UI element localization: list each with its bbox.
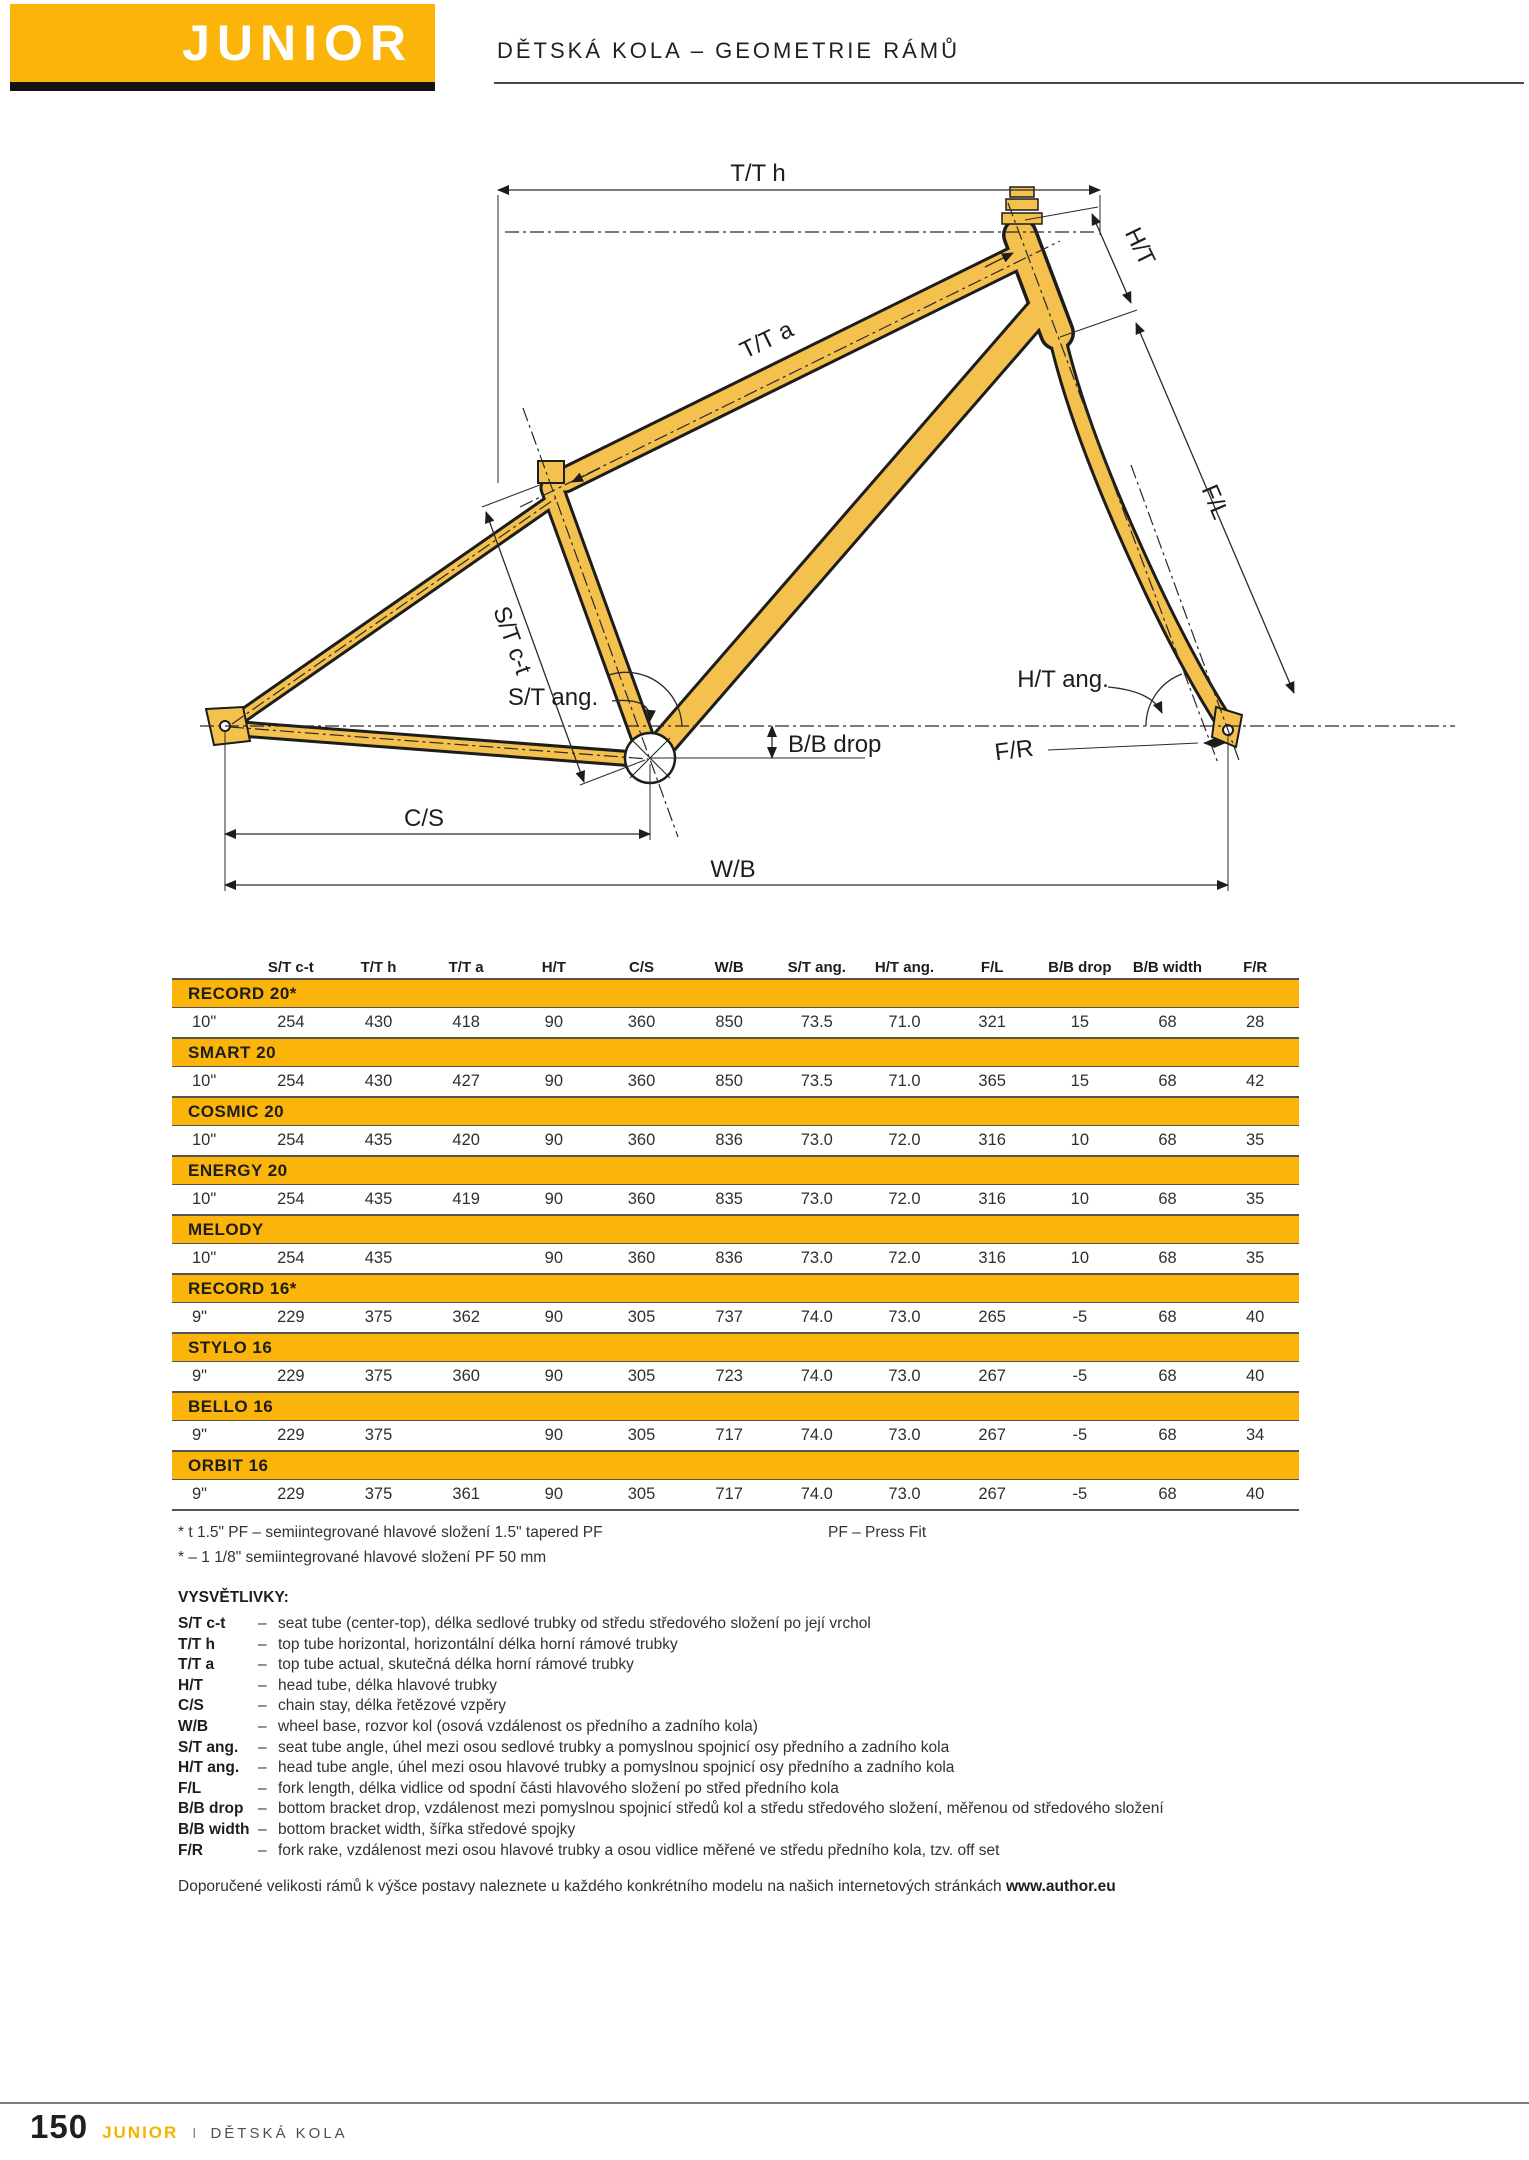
frame-size-cell: 10" xyxy=(172,1013,247,1032)
value-cell: 72.0 xyxy=(861,1131,949,1150)
value-cell: 71.0 xyxy=(861,1013,949,1032)
footnote-pressfit: PF – Press Fit xyxy=(828,1524,926,1542)
model-name: COSMIC 20 xyxy=(188,1102,284,1122)
value-cell: 305 xyxy=(598,1367,686,1386)
footer-brand: JUNIOR xyxy=(102,2123,178,2143)
value-cell: 68 xyxy=(1124,1190,1212,1209)
value-cell: 73.0 xyxy=(861,1308,949,1327)
value-cell: 229 xyxy=(247,1485,335,1504)
value-cell: 68 xyxy=(1124,1367,1212,1386)
column-header: S/T ang. xyxy=(773,959,861,976)
value-cell: 836 xyxy=(685,1249,773,1268)
legend-title: VYSVĚTLIVKY: xyxy=(178,1589,1418,1607)
value-cell: 68 xyxy=(1124,1426,1212,1445)
value-cell: 15 xyxy=(1036,1072,1124,1091)
legend-description: wheel base, rozvor kol (osová vzdálenost… xyxy=(278,1718,758,1736)
value-cell: -5 xyxy=(1036,1485,1124,1504)
table-row: 10" 254 435 419 90 360 835 73.0 72.0 316… xyxy=(172,1185,1299,1214)
value-cell: 850 xyxy=(685,1013,773,1032)
legend-term: S/T c-t xyxy=(178,1615,258,1633)
header-rule xyxy=(494,82,1524,84)
column-header: B/B width xyxy=(1124,959,1212,976)
legend-dash: – xyxy=(258,1739,278,1757)
value-cell: 360 xyxy=(422,1367,510,1386)
value-cell: 717 xyxy=(685,1485,773,1504)
legend-term: B/B drop xyxy=(178,1800,258,1818)
model-name-band: RECORD 16* xyxy=(172,1273,1299,1303)
value-cell: 254 xyxy=(247,1131,335,1150)
legend-dash: – xyxy=(258,1800,278,1818)
value-cell: 72.0 xyxy=(861,1190,949,1209)
value-cell: 74.0 xyxy=(773,1426,861,1445)
legend-description: bottom bracket width, šířka středové spo… xyxy=(278,1821,575,1839)
frame-size-cell: 10" xyxy=(172,1190,247,1209)
value-cell: 435 xyxy=(335,1249,423,1268)
value-cell: 316 xyxy=(948,1249,1036,1268)
value-cell: 10 xyxy=(1036,1249,1124,1268)
value-cell: 40 xyxy=(1211,1367,1299,1386)
label-ht-dimension: H/T xyxy=(1119,223,1160,270)
footer: 150 JUNIOR I DĚTSKÁ KOLA xyxy=(30,2108,348,2146)
model-name: STYLO 16 xyxy=(188,1338,272,1358)
value-cell: 10 xyxy=(1036,1190,1124,1209)
column-header: W/B xyxy=(685,959,773,976)
footer-rule xyxy=(0,2102,1529,2104)
column-header: B/B drop xyxy=(1036,959,1124,976)
value-cell: 28 xyxy=(1211,1013,1299,1032)
value-cell: 68 xyxy=(1124,1072,1212,1091)
value-cell: 850 xyxy=(685,1072,773,1091)
value-cell: 73.0 xyxy=(861,1367,949,1386)
value-cell: 74.0 xyxy=(773,1367,861,1386)
value-cell: 375 xyxy=(335,1367,423,1386)
column-header: T/T a xyxy=(422,959,510,976)
table-row: 10" 254 430 427 90 360 850 73.5 71.0 365… xyxy=(172,1067,1299,1096)
value-cell: 90 xyxy=(510,1367,598,1386)
value-cell: 34 xyxy=(1211,1426,1299,1445)
value-cell: 74.0 xyxy=(773,1485,861,1504)
page-title: DĚTSKÁ KOLA – GEOMETRIE RÁMŮ xyxy=(497,38,960,64)
label-cs-dimension: C/S xyxy=(404,805,444,832)
legend-term: B/B width xyxy=(178,1821,258,1839)
legend-dash: – xyxy=(258,1759,278,1777)
table-header-row: S/T c-t T/T h T/T a H/T C/S W/B S/T ang.… xyxy=(172,956,1299,978)
legend-item: T/T h – top tube horizontal, horizontáln… xyxy=(178,1636,1418,1657)
footnote-line1: * t 1.5" PF – semiintegrované hlavové sl… xyxy=(178,1524,603,1541)
legend-term: T/T a xyxy=(178,1656,258,1674)
value-cell: 316 xyxy=(948,1190,1036,1209)
value-cell: 35 xyxy=(1211,1190,1299,1209)
value-cell: 40 xyxy=(1211,1308,1299,1327)
legend-item: W/B – wheel base, rozvor kol (osová vzdá… xyxy=(178,1718,1418,1739)
legend-dash: – xyxy=(258,1718,278,1736)
table-row: 10" 254 430 418 90 360 850 73.5 71.0 321… xyxy=(172,1008,1299,1037)
value-cell: 90 xyxy=(510,1249,598,1268)
value-cell: 360 xyxy=(598,1072,686,1091)
frame-size-cell: 10" xyxy=(172,1249,247,1268)
seat-clamp xyxy=(538,461,564,483)
value-cell: 836 xyxy=(685,1131,773,1150)
value-cell: 430 xyxy=(335,1013,423,1032)
author-website-link[interactable]: www.author.eu xyxy=(1006,1878,1116,1895)
frame-geometry-diagram: T/T h T/T a H/T F/L S/T c-t S/T ang. H/T… xyxy=(0,95,1529,955)
model-name-band: SMART 20 xyxy=(172,1037,1299,1067)
value-cell: 419 xyxy=(422,1190,510,1209)
label-fl-dimension: F/L xyxy=(1196,481,1234,523)
value-cell: 73.0 xyxy=(773,1131,861,1150)
value-cell: 267 xyxy=(948,1367,1036,1386)
model-name: RECORD 16* xyxy=(188,1279,297,1299)
value-cell: 90 xyxy=(510,1190,598,1209)
value-cell: 420 xyxy=(422,1131,510,1150)
legend-item: S/T c-t – seat tube (center-top), délka … xyxy=(178,1615,1418,1636)
model-name-band: ORBIT 16 xyxy=(172,1450,1299,1480)
value-cell: 68 xyxy=(1124,1249,1212,1268)
model-name-band: BELLO 16 xyxy=(172,1391,1299,1421)
legend-term: F/L xyxy=(178,1780,258,1798)
value-cell: 90 xyxy=(510,1131,598,1150)
table-row: 9" 229 375 360 90 305 723 74.0 73.0 267 … xyxy=(172,1362,1299,1391)
value-cell: -5 xyxy=(1036,1308,1124,1327)
column-header: S/T c-t xyxy=(247,959,335,976)
value-cell: 723 xyxy=(685,1367,773,1386)
legend-term: T/T h xyxy=(178,1636,258,1654)
value-cell: 68 xyxy=(1124,1131,1212,1150)
column-header: F/L xyxy=(948,959,1036,976)
legend: VYSVĚTLIVKY: S/T c-t – seat tube (center… xyxy=(178,1589,1418,1862)
footer-section: DĚTSKÁ KOLA xyxy=(210,2125,347,2142)
value-cell: 68 xyxy=(1124,1308,1212,1327)
value-cell: 90 xyxy=(510,1072,598,1091)
legend-term: H/T ang. xyxy=(178,1759,258,1777)
value-cell: -5 xyxy=(1036,1367,1124,1386)
legend-item: B/B drop – bottom bracket drop, vzdáleno… xyxy=(178,1800,1418,1821)
legend-dash: – xyxy=(258,1697,278,1715)
value-cell: 71.0 xyxy=(861,1072,949,1091)
legend-item: H/T ang. – head tube angle, úhel mezi os… xyxy=(178,1759,1418,1780)
model-name-band: COSMIC 20 xyxy=(172,1096,1299,1126)
geometry-table: S/T c-t T/T h T/T a H/T C/S W/B S/T ang.… xyxy=(172,956,1299,1511)
legend-dash: – xyxy=(258,1677,278,1695)
value-cell: 73.0 xyxy=(773,1190,861,1209)
legend-description: top tube actual, skutečná délka horní rá… xyxy=(278,1656,634,1674)
legend-description: chain stay, délka řetězové vzpěry xyxy=(278,1697,506,1715)
legend-item: H/T – head tube, délka hlavové trubky xyxy=(178,1677,1418,1698)
value-cell: 375 xyxy=(335,1485,423,1504)
value-cell: 10 xyxy=(1036,1131,1124,1150)
recommendation-note: Doporučené velikosti rámů k výšce postav… xyxy=(178,1878,1116,1896)
value-cell: 254 xyxy=(247,1249,335,1268)
value-cell: 90 xyxy=(510,1308,598,1327)
value-cell: 360 xyxy=(598,1131,686,1150)
model-name-band: STYLO 16 xyxy=(172,1332,1299,1362)
table-row: 10" 254 435 420 90 360 836 73.0 72.0 316… xyxy=(172,1126,1299,1155)
legend-dash: – xyxy=(258,1615,278,1633)
value-cell: 72.0 xyxy=(861,1249,949,1268)
value-cell: 835 xyxy=(685,1190,773,1209)
legend-dash: – xyxy=(258,1656,278,1674)
value-cell: 360 xyxy=(598,1190,686,1209)
value-cell: 229 xyxy=(247,1426,335,1445)
page-number: 150 xyxy=(30,2108,88,2146)
legend-term: W/B xyxy=(178,1718,258,1736)
value-cell: 360 xyxy=(598,1249,686,1268)
bike-frame-drawing xyxy=(206,187,1242,783)
value-cell: 90 xyxy=(510,1013,598,1032)
value-cell: 73.0 xyxy=(861,1485,949,1504)
legend-item: B/B width – bottom bracket width, šířka … xyxy=(178,1821,1418,1842)
value-cell: 305 xyxy=(598,1426,686,1445)
value-cell: 435 xyxy=(335,1131,423,1150)
label-fr-dimension: F/R xyxy=(993,735,1035,767)
legend-term: F/R xyxy=(178,1842,258,1860)
footnotes: * t 1.5" PF – semiintegrované hlavové sl… xyxy=(178,1524,1338,1567)
legend-item: T/T a – top tube actual, skutečná délka … xyxy=(178,1656,1418,1677)
frame-size-cell: 9" xyxy=(172,1367,247,1386)
value-cell: 229 xyxy=(247,1308,335,1327)
model-name: ENERGY 20 xyxy=(188,1161,288,1181)
legend-item: S/T ang. – seat tube angle, úhel mezi os… xyxy=(178,1739,1418,1760)
label-tth-dimension: T/T h xyxy=(730,160,786,187)
value-cell: 35 xyxy=(1211,1249,1299,1268)
legend-description: top tube horizontal, horizontální délka … xyxy=(278,1636,678,1654)
footnote-line2: * – 1 1/8" semiintegrované hlavové slože… xyxy=(178,1549,1338,1567)
legend-description: seat tube angle, úhel mezi osou sedlové … xyxy=(278,1739,949,1757)
column-header: C/S xyxy=(598,959,686,976)
column-header: F/R xyxy=(1211,959,1299,976)
value-cell: 435 xyxy=(335,1190,423,1209)
value-cell: 267 xyxy=(948,1485,1036,1504)
value-cell: 35 xyxy=(1211,1131,1299,1150)
legend-description: seat tube (center-top), délka sedlové tr… xyxy=(278,1615,871,1633)
legend-dash: – xyxy=(258,1842,278,1860)
value-cell: 254 xyxy=(247,1190,335,1209)
value-cell: 254 xyxy=(247,1013,335,1032)
value-cell: 68 xyxy=(1124,1013,1212,1032)
value-cell: 74.0 xyxy=(773,1308,861,1327)
legend-dash: – xyxy=(258,1636,278,1654)
value-cell: 365 xyxy=(948,1072,1036,1091)
legend-item: F/R – fork rake, vzdálenost mezi osou hl… xyxy=(178,1842,1418,1863)
label-stct-dimension: S/T c-t xyxy=(487,603,537,679)
value-cell: 40 xyxy=(1211,1485,1299,1504)
legend-description: fork length, délka vidlice od spodní čás… xyxy=(278,1780,839,1798)
column-header: H/T ang. xyxy=(861,959,949,976)
column-header: T/T h xyxy=(335,959,423,976)
table-body: RECORD 20* 10" 254 430 418 90 360 850 73… xyxy=(172,978,1299,1511)
note-text: Doporučené velikosti rámů k výšce postav… xyxy=(178,1878,1002,1895)
value-cell: 427 xyxy=(422,1072,510,1091)
frame-size-cell: 10" xyxy=(172,1131,247,1150)
label-htang-dimension: H/T ang. xyxy=(1017,666,1109,693)
legend-item: C/S – chain stay, délka řetězové vzpěry xyxy=(178,1697,1418,1718)
table-row: 9" 229 375 362 90 305 737 74.0 73.0 265 … xyxy=(172,1303,1299,1332)
value-cell: 305 xyxy=(598,1308,686,1327)
value-cell: 73.5 xyxy=(773,1072,861,1091)
value-cell: 73.0 xyxy=(861,1426,949,1445)
table-row: 9" 229 375 361 90 305 717 74.0 73.0 267 … xyxy=(172,1480,1299,1509)
legend-description: head tube, délka hlavové trubky xyxy=(278,1677,497,1695)
legend-description: fork rake, vzdálenost mezi osou hlavové … xyxy=(278,1842,999,1860)
frame-size-cell: 9" xyxy=(172,1308,247,1327)
value-cell: 375 xyxy=(335,1426,423,1445)
column-header: H/T xyxy=(510,959,598,976)
label-stang-dimension: S/T ang. xyxy=(508,684,598,711)
value-cell: 737 xyxy=(685,1308,773,1327)
brand-underbar xyxy=(10,82,435,91)
value-cell: 90 xyxy=(510,1485,598,1504)
label-wb-dimension: W/B xyxy=(710,856,755,883)
value-cell: 90 xyxy=(510,1426,598,1445)
frame-size-cell: 10" xyxy=(172,1072,247,1091)
legend-term: H/T xyxy=(178,1677,258,1695)
legend-item: F/L – fork length, délka vidlice od spod… xyxy=(178,1780,1418,1801)
legend-items: S/T c-t – seat tube (center-top), délka … xyxy=(178,1615,1418,1862)
footer-separator: I xyxy=(192,2125,196,2142)
brand-box: JUNIOR xyxy=(10,4,435,82)
model-name: MELODY xyxy=(188,1220,264,1240)
legend-description: bottom bracket drop, vzdálenost mezi pom… xyxy=(278,1800,1164,1818)
legend-dash: – xyxy=(258,1780,278,1798)
legend-term: C/S xyxy=(178,1697,258,1715)
value-cell: 73.0 xyxy=(773,1249,861,1268)
model-name: SMART 20 xyxy=(188,1043,276,1063)
value-cell: 68 xyxy=(1124,1485,1212,1504)
value-cell: 305 xyxy=(598,1485,686,1504)
value-cell: 717 xyxy=(685,1426,773,1445)
label-bbdrop-dimension: B/B drop xyxy=(788,731,881,758)
value-cell: 430 xyxy=(335,1072,423,1091)
legend-term: S/T ang. xyxy=(178,1739,258,1757)
brand-title: JUNIOR xyxy=(182,14,413,72)
value-cell: 375 xyxy=(335,1308,423,1327)
model-name-band: ENERGY 20 xyxy=(172,1155,1299,1185)
value-cell: 361 xyxy=(422,1485,510,1504)
value-cell: 362 xyxy=(422,1308,510,1327)
value-cell: 321 xyxy=(948,1013,1036,1032)
value-cell: 265 xyxy=(948,1308,1036,1327)
value-cell: 267 xyxy=(948,1426,1036,1445)
model-name: BELLO 16 xyxy=(188,1397,273,1417)
table-row: 9" 229 375 90 305 717 74.0 73.0 267 -5 6… xyxy=(172,1421,1299,1450)
value-cell: 229 xyxy=(247,1367,335,1386)
value-cell: -5 xyxy=(1036,1426,1124,1445)
catalog-page: JUNIOR DĚTSKÁ KOLA – GEOMETRIE RÁMŮ xyxy=(0,0,1529,2160)
legend-dash: – xyxy=(258,1821,278,1839)
value-cell: 73.5 xyxy=(773,1013,861,1032)
table-row: 10" 254 435 90 360 836 73.0 72.0 316 10 … xyxy=(172,1244,1299,1273)
legend-description: head tube angle, úhel mezi osou hlavové … xyxy=(278,1759,954,1777)
value-cell: 418 xyxy=(422,1013,510,1032)
model-name-band: RECORD 20* xyxy=(172,978,1299,1008)
value-cell: 15 xyxy=(1036,1013,1124,1032)
value-cell: 42 xyxy=(1211,1072,1299,1091)
model-name: ORBIT 16 xyxy=(188,1456,269,1476)
value-cell: 316 xyxy=(948,1131,1036,1150)
value-cell: 360 xyxy=(598,1013,686,1032)
model-name: RECORD 20* xyxy=(188,984,297,1004)
frame-size-cell: 9" xyxy=(172,1485,247,1504)
frame-size-cell: 9" xyxy=(172,1426,247,1445)
model-name-band: MELODY xyxy=(172,1214,1299,1244)
value-cell: 254 xyxy=(247,1072,335,1091)
